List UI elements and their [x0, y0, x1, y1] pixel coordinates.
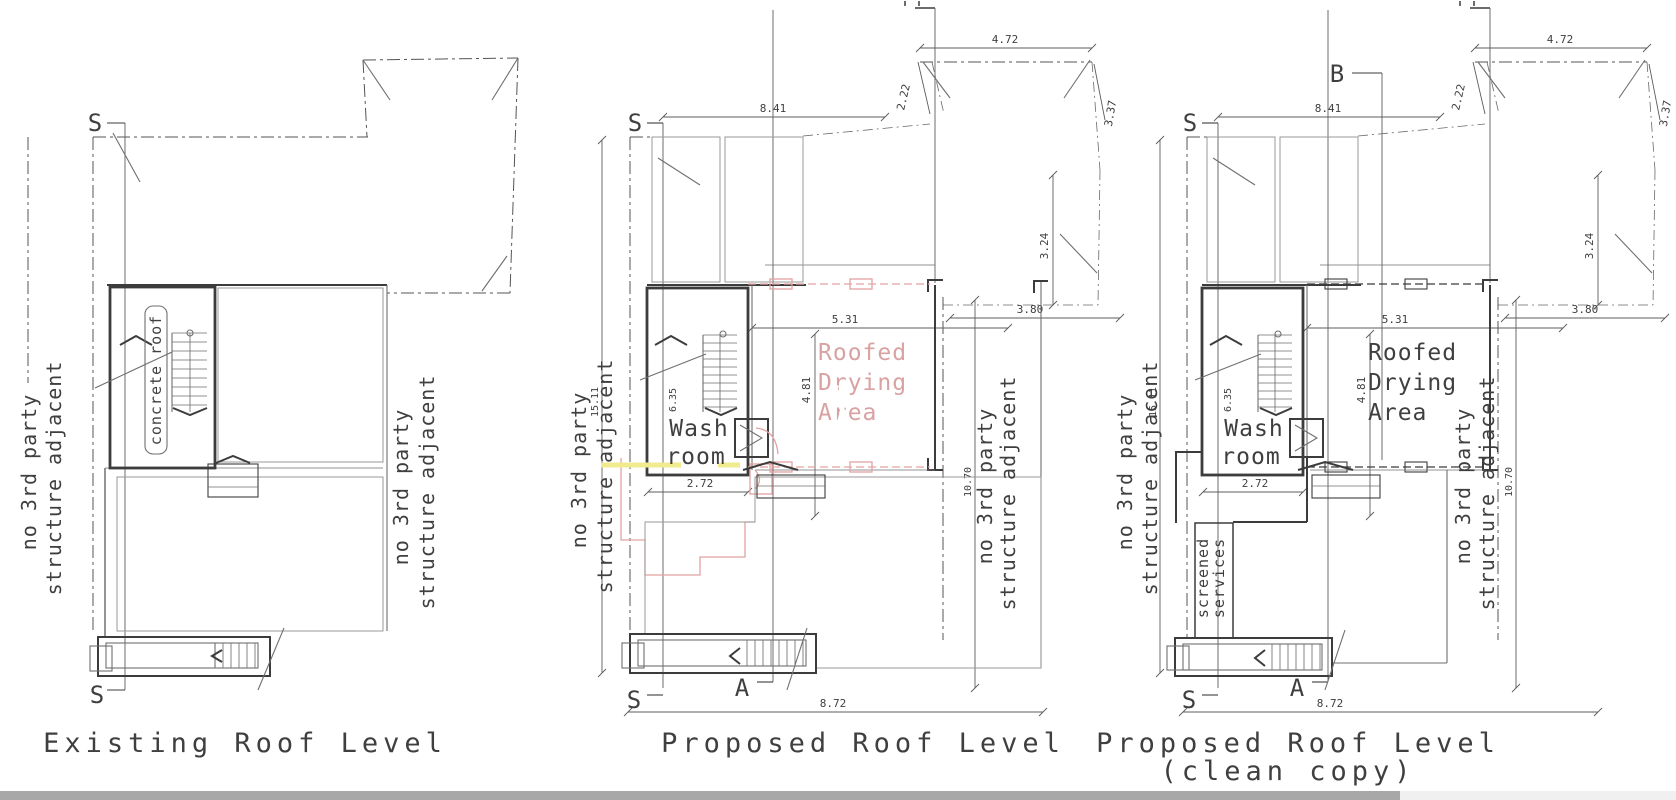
plan-existing: S S	[17, 58, 518, 759]
dim-wash-width: 2.72	[687, 477, 714, 490]
footer-bar-dark	[0, 791, 1400, 800]
drying-area: Roofed Drying Area	[1298, 340, 1457, 503]
drawing-sheet: S S	[0, 0, 1676, 800]
drying-label-line2: Drying	[818, 370, 907, 396]
plan-title-existing: Existing Roof Level	[43, 728, 447, 759]
section-marker-s-bottom: S	[90, 681, 104, 709]
screened-services-label-line2: services	[1210, 538, 1228, 618]
annotations: no 3rd party structure adjacent no 3rd p…	[1096, 361, 1500, 787]
upper-roof-tiles	[1207, 137, 1358, 282]
washroom-label-line2: room	[1221, 444, 1280, 470]
note-right-line1: no 3rd party	[389, 409, 413, 566]
dim-neighbour-width: 4.72	[1547, 33, 1574, 46]
dim-neighbour-width: 4.72	[992, 33, 1019, 46]
drying-area: Roofed Drying Area	[812, 340, 907, 461]
section-marker-s-bottom: S	[1182, 686, 1196, 714]
dim-wash-width: 2.72	[1242, 477, 1269, 490]
section-marker-b-top: B	[1330, 60, 1344, 88]
note-left-line1: no 3rd party	[17, 394, 41, 551]
dim-neighbour-depth: 3.24	[1583, 232, 1596, 259]
dim-neighbour-depth: 3.24	[1038, 232, 1051, 259]
plan-title-proposed: Proposed Roof Level	[661, 728, 1065, 759]
footer-bar-light	[1400, 791, 1676, 800]
drying-label-line3: Area	[818, 400, 877, 426]
boundary-lines	[28, 58, 518, 632]
washroom-label-line2: room	[666, 444, 725, 470]
roof-plans-canvas: S S	[0, 0, 1676, 800]
note-right-line2: structure adjacent	[996, 376, 1020, 611]
section-marker-a-bottom: A	[735, 674, 750, 702]
dim-top-width: 8.41	[1315, 102, 1342, 115]
note-right-line2: structure adjacent	[1475, 376, 1499, 611]
dim-stair-depth: 6.35	[668, 388, 679, 412]
plan-proposed: S S A 8.41	[567, 1, 1124, 759]
annotations: no 3rd party structure adjacent no 3rd p…	[17, 361, 447, 759]
note-left-line2: structure adjacent	[42, 361, 66, 596]
note-left-line1: no 3rd party	[1113, 394, 1137, 551]
plan-subtitle-clean: (clean copy)	[1160, 756, 1415, 787]
dim-drying-width: 5.31	[1382, 313, 1409, 326]
dim-setback: 3.80	[1017, 303, 1044, 316]
washroom-label-line1: Wash	[1224, 416, 1283, 442]
lower-stair-strip	[622, 628, 816, 690]
note-left-line2: structure adjacent	[1138, 361, 1162, 596]
note-right-line1: no 3rd party	[1451, 408, 1475, 565]
washroom-label-line1: Wash	[669, 416, 728, 442]
drying-label-line1: Roofed	[818, 340, 907, 366]
stairwell: concrete roof	[95, 133, 215, 468]
dim-neighbour-side: 2.22	[1449, 83, 1468, 112]
dim-neighbour-right: 3.37	[1657, 99, 1674, 127]
dim-top-width: 8.41	[760, 102, 787, 115]
drying-label-line2: Drying	[1368, 370, 1457, 396]
dim-drying-depth: 4.81	[1355, 377, 1368, 404]
plan-title-clean: Proposed Roof Level	[1096, 728, 1500, 759]
wash-room: Wash room	[666, 416, 728, 470]
dim-drying-width: 5.31	[832, 313, 859, 326]
concrete-roof-label: concrete roof	[147, 315, 165, 445]
section-marker-s-top: S	[88, 109, 102, 137]
section-marker-a-bottom: A	[1290, 674, 1305, 702]
section-marker-s-top: S	[628, 109, 642, 137]
dim-setback: 3.80	[1572, 303, 1599, 316]
lower-stair-strip	[1167, 630, 1345, 690]
note-left-line2: structure adjacent	[593, 359, 617, 594]
note-right-line2: structure adjacent	[415, 375, 439, 610]
section-marker-s-bottom: S	[627, 686, 641, 714]
note-right-line1: no 3rd party	[973, 408, 997, 565]
plan-clean-copy: S S A B	[1096, 1, 1674, 787]
proposed-red-work	[601, 279, 930, 575]
dim-neighbour-side: 2.22	[894, 83, 913, 112]
upper-roof-tiles	[652, 137, 803, 282]
dim-drying-depth: 4.81	[800, 377, 813, 404]
wash-room: Wash room	[1176, 416, 1307, 523]
dim-neighbour-right: 3.37	[1102, 99, 1119, 127]
annotations: no 3rd party structure adjacent no 3rd p…	[567, 359, 1065, 759]
drying-label-line3: Area	[1368, 400, 1427, 426]
lower-stair-strip	[90, 628, 284, 690]
screened-services: screened services	[1194, 523, 1233, 638]
dim-bottom-width: 8.72	[820, 697, 847, 710]
note-left-line1: no 3rd party	[567, 392, 591, 549]
dim-bottom-width: 8.72	[1317, 697, 1344, 710]
dim-right-height: 10.70	[1504, 467, 1515, 497]
drying-label-line1: Roofed	[1368, 340, 1457, 366]
dim-stair-depth: 6.35	[1223, 388, 1234, 412]
section-marker-s-top: S	[1183, 109, 1197, 137]
